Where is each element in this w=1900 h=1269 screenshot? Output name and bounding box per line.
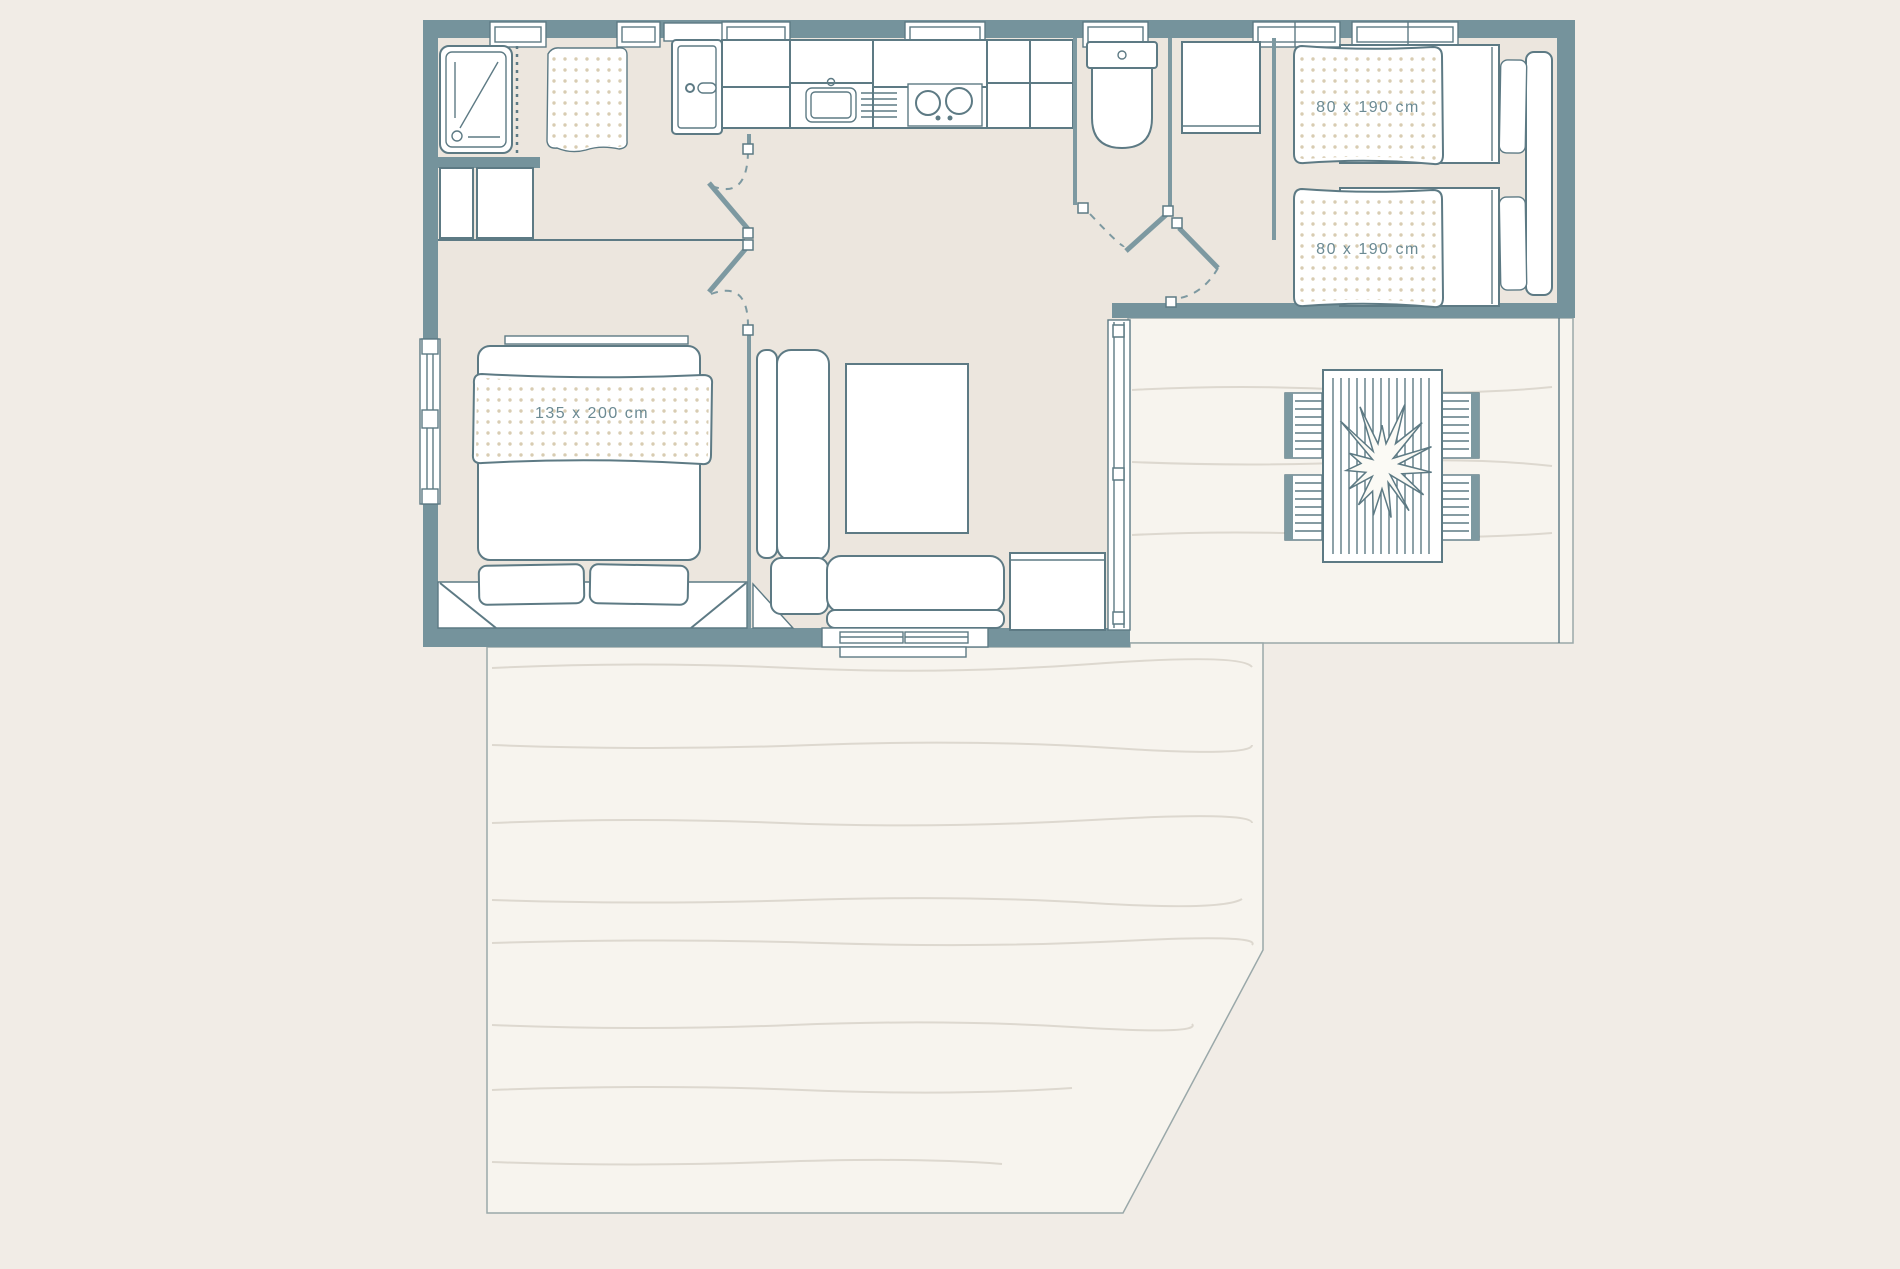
dining-chair xyxy=(1442,393,1479,458)
shower-half-wall xyxy=(438,157,540,168)
twin-bed-2: 80 x 190 cm xyxy=(1294,188,1527,307)
dining-chair xyxy=(1442,475,1479,540)
entry-door-threshold xyxy=(664,23,726,41)
main-terrace xyxy=(487,643,1263,1213)
terrace-sliding-door-south xyxy=(822,628,988,657)
foot-shelf xyxy=(505,336,688,344)
window-icon xyxy=(490,22,546,47)
toilet-icon xyxy=(1087,42,1157,148)
dining-chair xyxy=(1285,475,1322,540)
double-bed-label: 135 x 200 cm xyxy=(535,405,649,422)
headboard xyxy=(1526,52,1552,295)
twin-bed-1: 80 x 190 cm xyxy=(1294,45,1527,164)
bathroom-cabinet xyxy=(477,168,533,238)
floor-plan: 80 x 190 cm 80 x 190 cm 135 x 200 cm xyxy=(0,0,1900,1269)
wardrobe xyxy=(1182,42,1260,133)
stove-icon xyxy=(908,84,982,126)
dining-table xyxy=(1323,370,1442,562)
kitchen xyxy=(722,40,1073,128)
bathroom-cabinet xyxy=(440,168,473,238)
window-icon xyxy=(617,22,660,47)
towel-icon xyxy=(547,48,627,152)
pillow-icon xyxy=(1499,60,1527,153)
window-icon xyxy=(1253,22,1340,47)
pillow-icon xyxy=(590,564,689,605)
window-left-wall xyxy=(420,339,440,504)
dining-chair xyxy=(1285,393,1322,458)
twin-bed-2-label: 80 x 190 cm xyxy=(1316,241,1420,258)
master-bedroom: 135 x 200 cm xyxy=(438,336,747,628)
entry-door xyxy=(672,40,722,134)
tv-cabinet xyxy=(1010,553,1105,630)
terrace-sliding-door-east xyxy=(1108,320,1130,630)
pillow-icon xyxy=(1499,197,1527,290)
window-icon xyxy=(1352,22,1458,47)
shower-tray-icon xyxy=(440,46,512,153)
pillow-icon xyxy=(479,564,585,605)
twin-bed-1-label: 80 x 190 cm xyxy=(1316,99,1420,116)
wall-right xyxy=(1557,20,1575,318)
door-handle-icon xyxy=(698,83,716,93)
table xyxy=(846,364,968,533)
wall-left xyxy=(423,20,438,647)
